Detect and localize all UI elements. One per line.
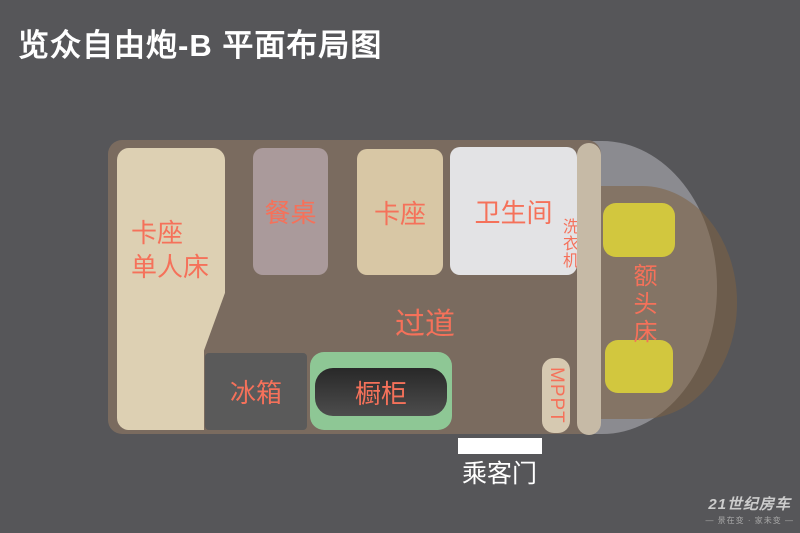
cabinet-label: 橱柜	[355, 374, 407, 411]
dining-table-label: 餐桌	[264, 193, 316, 230]
cab-partition-pillar	[577, 143, 601, 435]
brand-watermark: 21世纪房车 — 景在变 · 家未变 —	[705, 493, 794, 526]
dining-table: 餐桌	[253, 148, 328, 275]
booth-single-bed-label-line2: 单人床	[131, 250, 209, 284]
booth-seat: 卡座	[357, 149, 443, 275]
fridge-label: 冰箱	[230, 373, 282, 410]
cabinet-counter: 橱柜	[315, 368, 447, 416]
booth-single-bed-label: 卡座 单人床	[131, 216, 209, 284]
floorplan-canvas: 览众自由炮-B 平面布局图 卡座 单人床 餐桌 卡座 卫生间 洗衣机 过道 冰箱…	[0, 0, 800, 533]
aisle-label: 过道	[395, 299, 455, 343]
page-title: 览众自由炮-B 平面布局图	[18, 20, 382, 65]
washing-machine-label: 洗衣机	[559, 218, 576, 269]
brand-slogan: — 景在变 · 家未变 —	[705, 515, 794, 526]
fridge: 冰箱	[205, 353, 307, 430]
booth-seat-label: 卡座	[374, 194, 426, 231]
overhead-bed-label: 额头床	[630, 263, 654, 347]
mppt-unit: MPPT	[542, 358, 570, 433]
booth-single-bed-label-line1: 卡座	[131, 216, 209, 250]
bathroom: 卫生间 洗衣机	[450, 147, 577, 275]
cab-seat-top	[603, 203, 675, 257]
mppt-label: MPPT	[545, 367, 567, 424]
passenger-door-marker	[458, 438, 542, 454]
passenger-door-label: 乘客门	[462, 454, 537, 490]
cabinet: 橱柜	[310, 352, 452, 430]
brand-logo-text: 21世纪房车	[705, 493, 794, 514]
bathroom-label: 卫生间	[474, 193, 552, 230]
cab-seat-bottom	[605, 340, 673, 393]
